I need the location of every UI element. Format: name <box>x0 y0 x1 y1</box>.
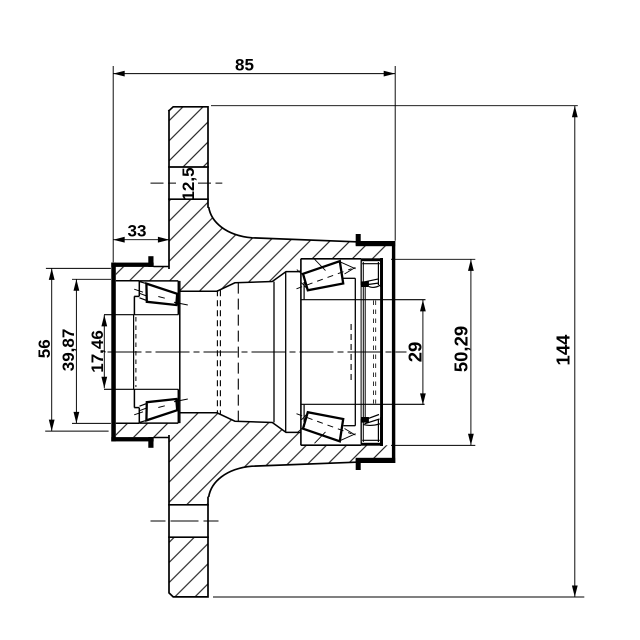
svg-text:50,29: 50,29 <box>451 326 472 372</box>
svg-text:12,5: 12,5 <box>179 167 198 200</box>
svg-text:29: 29 <box>404 342 425 363</box>
svg-text:39,87: 39,87 <box>59 329 78 372</box>
svg-text:85: 85 <box>235 56 254 75</box>
svg-text:144: 144 <box>553 334 574 366</box>
svg-text:17,46: 17,46 <box>88 330 107 373</box>
svg-text:33: 33 <box>128 222 147 241</box>
svg-text:56: 56 <box>35 339 54 358</box>
